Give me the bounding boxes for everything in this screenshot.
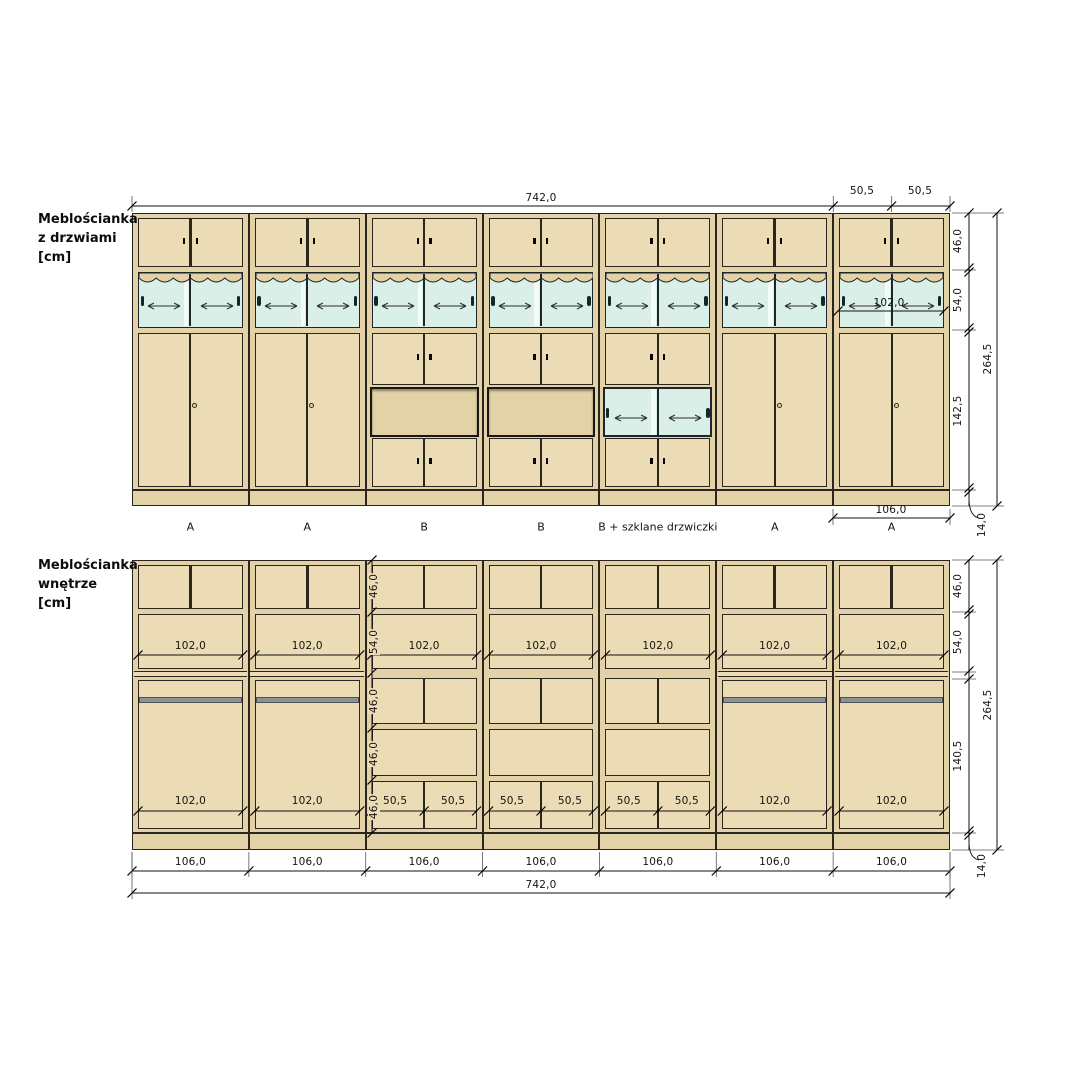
- door-gap: [423, 439, 426, 486]
- dimension-label: 50,5: [675, 795, 699, 807]
- dimension-label: 106,0: [292, 856, 323, 868]
- door-handle: [417, 238, 419, 245]
- glass-divider: [423, 274, 425, 326]
- door-handle: [663, 238, 665, 245]
- dimension-label: 54,0: [952, 288, 964, 312]
- glass-handle: [237, 296, 241, 306]
- dimension-label: 54,0: [368, 629, 380, 655]
- door-handle: [546, 238, 548, 245]
- compartment-divider: [423, 782, 426, 828]
- section-label: A: [304, 521, 312, 534]
- door-gap: [540, 219, 543, 266]
- glass-divider: [657, 274, 659, 326]
- glass-reflection: [651, 389, 656, 435]
- plinth: [716, 490, 833, 506]
- top-drawing-title: Meblościanka z drzwiami [cm]: [38, 210, 138, 267]
- door-handle: [417, 354, 419, 361]
- door-gap: [774, 334, 776, 486]
- dimension-label: 106,0: [409, 856, 440, 868]
- glass-handle: [821, 296, 825, 306]
- dimension-label: 106,0: [875, 504, 906, 516]
- slide-arrow-icon: [666, 296, 702, 306]
- door-gap: [189, 334, 191, 486]
- dimension-label: 102,0: [292, 795, 323, 807]
- dimension-lines: [0, 0, 1081, 1081]
- compartment-divider: [540, 782, 543, 828]
- shelf: [134, 671, 248, 677]
- slide-arrow-icon: [263, 296, 299, 306]
- door-handle: [650, 354, 652, 361]
- compartment-divider: [773, 566, 776, 608]
- dimension-label: 106,0: [642, 856, 673, 868]
- compartment: [605, 729, 710, 776]
- clothes-rod: [840, 697, 943, 703]
- compartment-divider: [540, 566, 543, 608]
- plinth: [249, 490, 366, 506]
- dimension-label: 742,0: [525, 879, 556, 891]
- glass-divider: [306, 274, 308, 326]
- door-handle: [429, 238, 431, 245]
- door-gap: [773, 219, 776, 266]
- open-niche: [487, 387, 596, 437]
- section-label: A: [888, 521, 896, 534]
- dimension-label: 102,0: [409, 640, 440, 652]
- glass-handle: [587, 296, 591, 306]
- slide-arrow-icon: [614, 296, 650, 306]
- glass-handle: [842, 296, 846, 306]
- door-handle: [429, 458, 431, 465]
- dimension-label: 14,0: [976, 854, 988, 878]
- slide-arrow-icon: [199, 296, 235, 306]
- title-line: [cm]: [38, 594, 138, 613]
- dimension-label: 102,0: [876, 795, 907, 807]
- slide-arrow-icon: [315, 296, 351, 306]
- clothes-rod: [139, 697, 242, 703]
- glass-handle: [606, 408, 610, 418]
- dimension-label: 46,0: [368, 573, 380, 599]
- glass-handle: [257, 296, 261, 306]
- door-handle: [183, 238, 185, 245]
- door-gap: [657, 439, 660, 486]
- dimension-label: 102,0: [873, 297, 904, 309]
- plinth: [366, 490, 483, 506]
- dimension-label: 102,0: [759, 795, 790, 807]
- glass-divider: [657, 389, 659, 435]
- dimension-label: 106,0: [525, 856, 556, 868]
- plinth: [132, 833, 249, 850]
- glass-handle: [354, 296, 358, 306]
- door-handle: [300, 238, 302, 245]
- plinth: [833, 833, 950, 850]
- dimension-label: 102,0: [876, 640, 907, 652]
- dimension-label: 50,5: [850, 185, 874, 197]
- dimension-label: 50,5: [558, 795, 582, 807]
- door-handle: [884, 238, 886, 245]
- door-handle: [650, 458, 652, 465]
- bottom-drawing-title: Meblościanka wnętrze [cm]: [38, 556, 138, 613]
- door-handle: [767, 238, 769, 245]
- section-label: A: [771, 521, 779, 534]
- dimension-label: 106,0: [175, 856, 206, 868]
- door-handle: [533, 458, 535, 465]
- compartment-divider: [657, 679, 660, 723]
- section-label: B: [420, 521, 428, 534]
- title-line: z drzwiami: [38, 229, 138, 248]
- glass-divider: [189, 274, 191, 326]
- glass-handle: [471, 296, 475, 306]
- shelf: [718, 671, 832, 677]
- door-knob: [777, 403, 782, 408]
- dimension-label: 46,0: [368, 687, 380, 713]
- dimension-label: 742,0: [525, 192, 556, 204]
- dimension-label: 46,0: [952, 574, 964, 598]
- door-handle: [650, 238, 652, 245]
- section-label: B + szklane drzwiczki: [598, 521, 717, 534]
- title-line: wnętrze: [38, 575, 138, 594]
- open-niche: [370, 387, 479, 437]
- title-line: Meblościanka: [38, 556, 138, 575]
- dimension-label: 102,0: [175, 640, 206, 652]
- dimension-label: 102,0: [292, 640, 323, 652]
- compartment: [489, 729, 594, 776]
- glass-handle: [725, 296, 729, 306]
- door-gap: [189, 219, 192, 266]
- plinth: [132, 490, 249, 506]
- door-handle: [313, 238, 315, 245]
- door-handle: [533, 238, 535, 245]
- door-knob: [894, 403, 899, 408]
- dimension-label: 264,5: [982, 689, 994, 720]
- shelf: [835, 671, 949, 677]
- door-handle: [546, 354, 548, 361]
- compartment-divider: [306, 566, 309, 608]
- door-gap: [306, 219, 309, 266]
- door-handle: [429, 354, 431, 361]
- compartment-divider: [423, 679, 426, 723]
- compartment-divider: [657, 566, 660, 608]
- dimension-label: 50,5: [441, 795, 465, 807]
- glass-handle: [141, 296, 145, 306]
- dimension-label: 102,0: [525, 640, 556, 652]
- dimension-label: 50,5: [908, 185, 932, 197]
- door-gap: [306, 334, 308, 486]
- compartment-divider: [189, 566, 192, 608]
- plinth: [249, 833, 366, 850]
- slide-arrow-icon: [380, 296, 416, 306]
- dimension-label: 142,5: [952, 395, 964, 426]
- shelf: [250, 671, 364, 677]
- dimension-label: 140,5: [952, 740, 964, 771]
- plinth: [599, 490, 716, 506]
- door-handle: [663, 354, 665, 361]
- section-label: A: [187, 521, 195, 534]
- dimension-label: 46,0: [952, 229, 964, 253]
- glass-handle: [374, 296, 378, 306]
- door-gap: [423, 334, 426, 384]
- plinth: [483, 833, 600, 850]
- clothes-rod: [723, 697, 826, 703]
- compartment-divider: [657, 782, 660, 828]
- plinth: [599, 833, 716, 850]
- clothes-rod: [256, 697, 359, 703]
- plinth: [483, 490, 600, 506]
- slide-arrow-icon: [730, 296, 766, 306]
- door-gap: [891, 334, 893, 486]
- door-gap: [423, 219, 426, 266]
- compartment-divider: [540, 679, 543, 723]
- glass-handle: [608, 296, 612, 306]
- door-gap: [657, 219, 660, 266]
- section-label: B: [537, 521, 545, 534]
- glass-handle: [706, 408, 710, 418]
- dimension-label: 14,0: [976, 513, 988, 537]
- door-handle: [196, 238, 198, 245]
- dimension-label: 102,0: [642, 640, 673, 652]
- dimension-label: 54,0: [952, 630, 964, 654]
- dimension-label: 106,0: [876, 856, 907, 868]
- glass-handle: [491, 296, 495, 306]
- plinth: [716, 833, 833, 850]
- dimension-label: 50,5: [500, 795, 524, 807]
- compartment-divider: [423, 566, 426, 608]
- glass-handle: [704, 296, 708, 306]
- dimension-label: 46,0: [368, 793, 380, 819]
- dimension-label: 106,0: [759, 856, 790, 868]
- door-gap: [890, 219, 893, 266]
- compartment: [372, 729, 477, 776]
- door-gap: [540, 439, 543, 486]
- dimension-label: 264,5: [982, 343, 994, 374]
- door-gap: [540, 334, 543, 384]
- door-handle: [663, 458, 665, 465]
- slide-arrow-icon: [432, 296, 468, 306]
- compartment-divider: [890, 566, 893, 608]
- dimension-label: 46,0: [368, 741, 380, 767]
- door-handle: [546, 458, 548, 465]
- door-handle: [417, 458, 419, 465]
- title-line: [cm]: [38, 248, 138, 267]
- slide-arrow-icon: [497, 296, 533, 306]
- slide-arrow-icon: [783, 296, 819, 306]
- door-handle: [897, 238, 899, 245]
- dimension-label: 50,5: [383, 795, 407, 807]
- dimension-label: 102,0: [759, 640, 790, 652]
- door-handle: [533, 354, 535, 361]
- dimension-label: 50,5: [617, 795, 641, 807]
- door-handle: [780, 238, 782, 245]
- glass-divider: [540, 274, 542, 326]
- dimension-label: 102,0: [175, 795, 206, 807]
- slide-arrow-icon: [549, 296, 585, 306]
- glass-handle: [938, 296, 942, 306]
- glass-divider: [774, 274, 776, 326]
- door-gap: [657, 334, 660, 384]
- plinth: [366, 833, 483, 850]
- slide-arrow-icon: [146, 296, 182, 306]
- slide-arrow-icon: [667, 408, 703, 418]
- slide-arrow-icon: [613, 408, 649, 418]
- furniture-drawing-canvas: Meblościanka z drzwiami [cm] Meblościank…: [0, 0, 1081, 1081]
- title-line: Meblościanka: [38, 210, 138, 229]
- slide-arrow-icon: [900, 296, 936, 306]
